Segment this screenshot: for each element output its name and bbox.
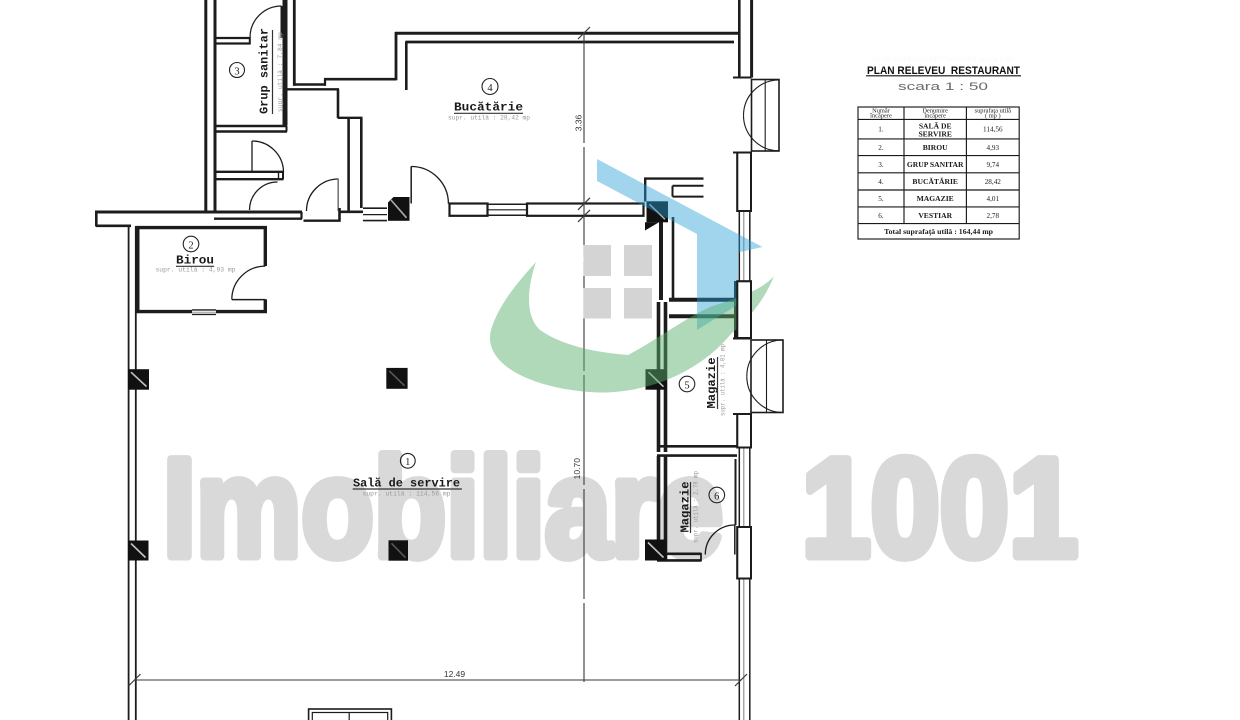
- svg-text:BUCĂTĂRIE: BUCĂTĂRIE: [912, 176, 958, 186]
- svg-text:supr. utilă : 7,84 mp: supr. utilă : 7,84 mp: [277, 32, 284, 112]
- svg-text:2.: 2.: [878, 144, 884, 152]
- svg-text:PLAN RELEVEU RESTAURANT: PLAN RELEVEU RESTAURANT: [867, 65, 1020, 77]
- svg-text:3.: 3.: [878, 161, 884, 169]
- svg-text:1001: 1001: [802, 429, 1079, 586]
- svg-text:9,74: 9,74: [987, 161, 1000, 169]
- svg-text:6: 6: [714, 491, 719, 502]
- svg-text:BIROU: BIROU: [923, 143, 948, 152]
- svg-text:3.36: 3.36: [574, 114, 584, 131]
- svg-text:VESTIAR: VESTIAR: [918, 211, 952, 220]
- svg-text:114,56: 114,56: [983, 126, 1003, 134]
- svg-text:2: 2: [188, 240, 193, 251]
- svg-text:Bucătărie: Bucătărie: [454, 101, 523, 115]
- svg-text:Birou: Birou: [176, 254, 214, 268]
- svg-text:supr. utilă : 28,42 mp: supr. utilă : 28,42 mp: [448, 115, 530, 122]
- svg-text:încăpere: încăpere: [923, 113, 946, 120]
- svg-text:SERVIRE: SERVIRE: [918, 129, 952, 138]
- svg-text:12.49: 12.49: [444, 669, 466, 679]
- svg-text:supr. utilă : 4,93 mp: supr. utilă : 4,93 mp: [156, 267, 236, 274]
- svg-text:Imobiliare: Imobiliare: [163, 429, 723, 586]
- svg-text:GRUP SANITAR: GRUP SANITAR: [907, 160, 964, 169]
- svg-text:Total suprafaţă utilă : 164,44: Total suprafaţă utilă : 164,44 mp: [884, 227, 994, 236]
- svg-text:supr. utilă : 4,01 mp: supr. utilă : 4,01 mp: [720, 344, 727, 416]
- svg-text:MAGAZIE: MAGAZIE: [917, 194, 954, 203]
- svg-text:3: 3: [234, 66, 239, 77]
- svg-text:2,78: 2,78: [987, 212, 1000, 220]
- svg-text:1.: 1.: [878, 126, 884, 134]
- svg-text:28,42: 28,42: [985, 178, 1002, 186]
- svg-text:supr. utilă : 114,56 mp: supr. utilă : 114,56 mp: [363, 491, 451, 498]
- svg-text:Grup sanitar: Grup sanitar: [258, 28, 272, 114]
- svg-text:4,01: 4,01: [987, 195, 1000, 203]
- svg-text:4: 4: [487, 83, 493, 94]
- svg-text:1: 1: [405, 457, 410, 468]
- svg-text:4,93: 4,93: [987, 144, 1000, 152]
- svg-text:4.: 4.: [878, 178, 884, 186]
- svg-text:PLAN RELEVEU RESTAURANT scara: PLAN RELEVEU RESTAURANT scara 1:50: [873, 57, 1013, 64]
- svg-text:6.: 6.: [878, 212, 884, 220]
- svg-text:scara 1 : 50: scara 1 : 50: [898, 81, 988, 93]
- svg-text:încăpere: încăpere: [869, 113, 892, 120]
- svg-text:5.: 5.: [878, 195, 884, 203]
- svg-text:supr. utilă : 2,78 mp: supr. utilă : 2,78 mp: [693, 471, 700, 543]
- svg-text:5: 5: [684, 380, 689, 391]
- svg-text:( mp ): ( mp ): [985, 113, 1001, 120]
- svg-text:10.70: 10.70: [572, 458, 582, 480]
